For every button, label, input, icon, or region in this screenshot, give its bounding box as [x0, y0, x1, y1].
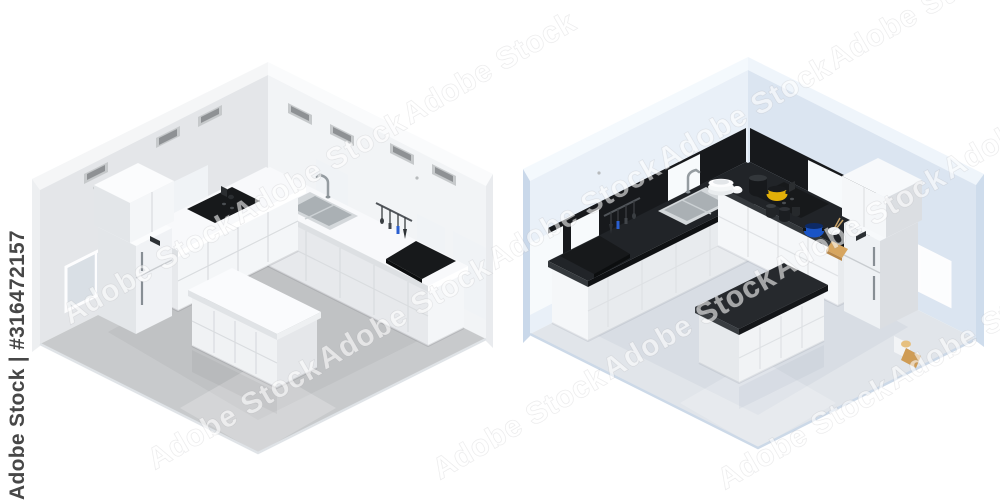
black-pot — [749, 175, 767, 197]
watermark-asset-id: Adobe Stock | #316472157 — [6, 230, 29, 500]
pot-opening — [768, 186, 786, 192]
pot-handle — [766, 191, 769, 194]
pot-handle — [786, 191, 789, 194]
pot-rim — [749, 175, 767, 181]
pot-handle — [803, 228, 806, 231]
plate-stack — [708, 179, 734, 196]
isometric-kitchens-render: Adobe Stock Adobe Stock Adobe Stock Adob… — [0, 0, 1000, 501]
plate-center — [713, 179, 729, 184]
watermark-diagonal: Adobe Stock — [937, 60, 1000, 186]
crock-rim — [766, 204, 776, 208]
bread-loaf — [901, 341, 911, 348]
watermark-diagonal: Adobe Stock — [822, 0, 1000, 76]
bowl-rim — [733, 186, 741, 190]
crock — [792, 207, 800, 217]
watermark-diagonal: Adobe Stock — [397, 5, 582, 131]
watermark-diagonal: Adobe Stock — [427, 360, 612, 486]
crock-rim — [779, 207, 790, 211]
stock-photo-canvas: Adobe Stock Adobe Stock Adobe Stock Adob… — [0, 0, 1000, 501]
